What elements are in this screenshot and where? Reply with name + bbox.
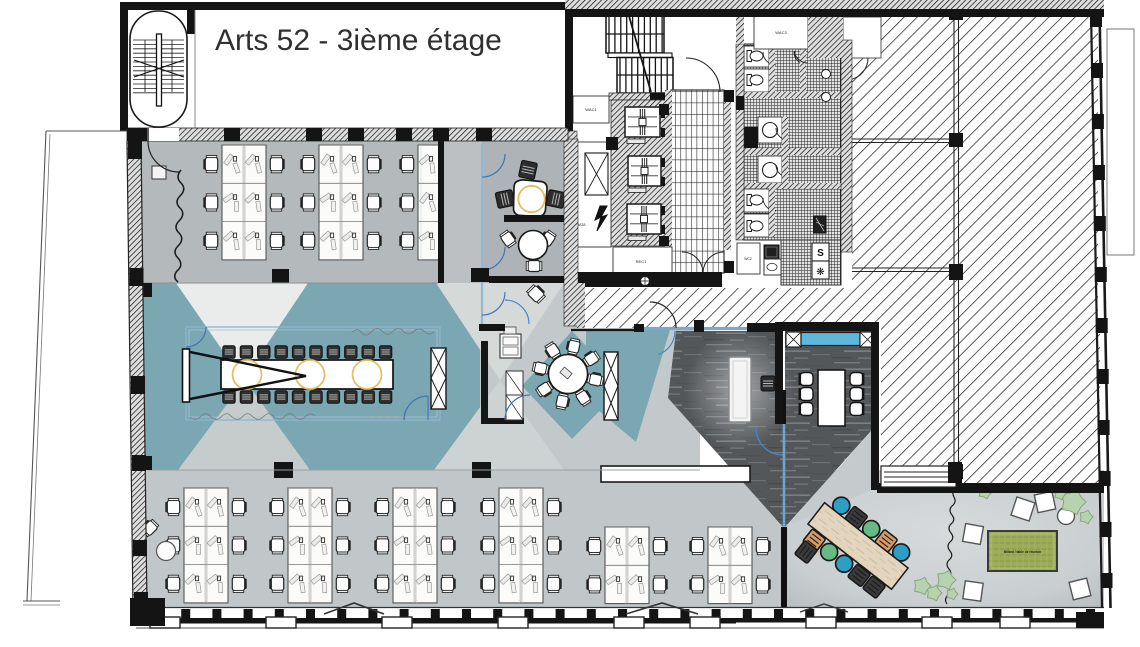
svg-text:❋: ❋ bbox=[816, 267, 824, 278]
svg-text:Billard / table de réunion: Billard / table de réunion bbox=[1004, 550, 1041, 554]
svg-text:WAC3: WAC3 bbox=[775, 30, 787, 35]
svg-text:S: S bbox=[817, 248, 824, 259]
svg-text:WC2: WC2 bbox=[744, 257, 752, 261]
svg-text:REC1: REC1 bbox=[636, 259, 647, 264]
svg-text:Arts 52 - 3ième étage: Arts 52 - 3ième étage bbox=[215, 24, 502, 57]
svg-text:WAC1: WAC1 bbox=[585, 107, 597, 112]
